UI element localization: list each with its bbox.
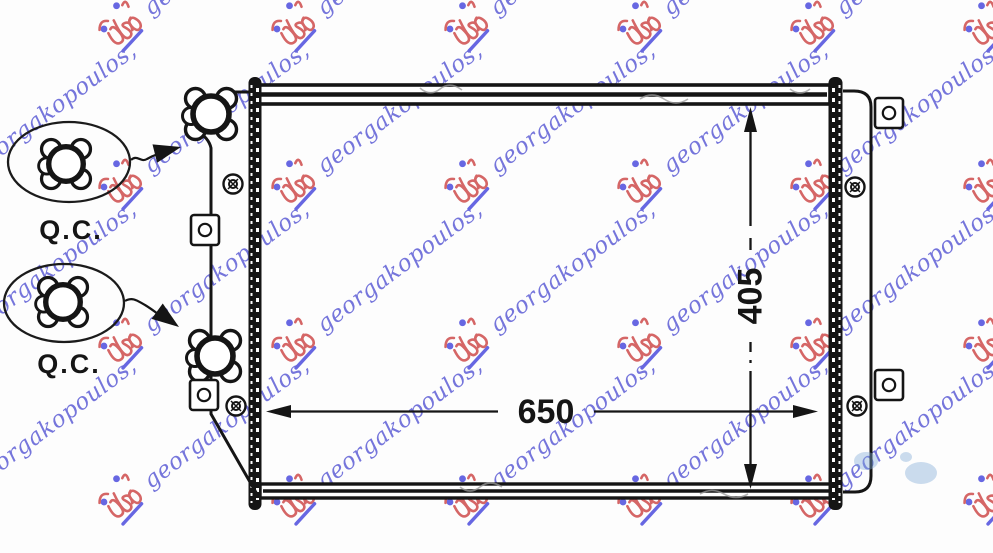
screw-boss-bottom-right: [848, 397, 867, 416]
arrow-up-icon: [744, 107, 757, 132]
height-dimension-label: 405: [732, 268, 770, 325]
lower-hose-port: [187, 331, 241, 382]
callout-leader-line: [125, 299, 158, 314]
filler-neck-port: [183, 89, 237, 140]
right-core-strip: [829, 77, 843, 510]
drawing-layer: 650 405 Q.C. Q.C.: [0, 0, 993, 553]
callout-leader-line: [131, 154, 158, 160]
bracket-right-lower: [875, 370, 903, 400]
qc-port-detail: [39, 140, 91, 189]
arrow-right-icon: [793, 405, 818, 418]
radiator-diagram: 650 405 Q.C. Q.C.: [0, 0, 993, 553]
qc-port-detail: [36, 278, 88, 327]
scan-smudge: [854, 452, 937, 484]
top-header-bar: [258, 85, 830, 104]
qc-label-upper: Q.C.: [39, 215, 103, 245]
bracket-right-upper: [875, 98, 903, 128]
callout-arrowhead-icon: [153, 138, 184, 163]
right-tank-outline: [843, 91, 871, 492]
dimension-height: 405: [732, 107, 770, 489]
callout-arrowhead-icon: [152, 303, 185, 334]
bracket-left-lower: [190, 380, 218, 410]
width-dimension-label: 650: [518, 393, 575, 431]
left-core-strip: [249, 77, 262, 510]
radiator-body: [183, 77, 904, 510]
qc-stamp-upper: Q.C.: [8, 122, 183, 245]
arrow-left-icon: [266, 405, 291, 418]
screw-boss-bottom-left: [227, 397, 246, 416]
bracket-left-upper: [191, 215, 219, 245]
screw-boss-top-right: [846, 178, 865, 197]
screw-boss-top-left: [224, 175, 243, 194]
qc-stamp-lower: Q.C.: [4, 264, 185, 379]
dimension-width: 650: [266, 393, 818, 431]
qc-label-lower: Q.C.: [37, 349, 101, 379]
product-image-canvas: georgakopoulos,georgakopoulos,georgakopo…: [0, 0, 993, 553]
